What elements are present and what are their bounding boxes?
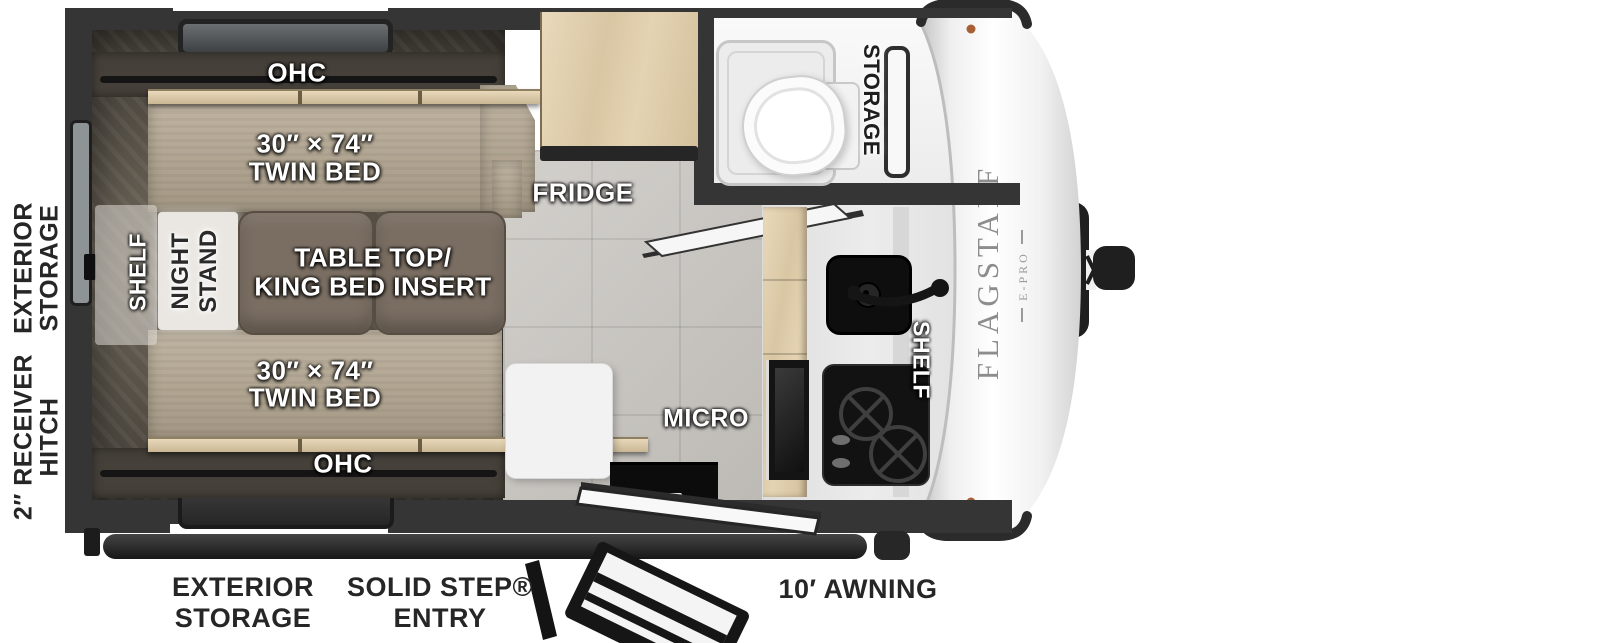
bathroom-door <box>638 196 873 258</box>
label-stand: STAND <box>195 229 223 312</box>
label-fridge: FRIDGE <box>532 178 633 209</box>
label-ohc-top: OHC <box>267 58 326 89</box>
marker-light-top <box>967 25 976 34</box>
label-exterior-storage-bottom: EXTERIOR STORAGE <box>143 572 343 634</box>
label-shelf-kitchen: SHELF <box>908 321 935 399</box>
label-ohc-bottom: OHC <box>313 449 372 480</box>
label-solid-step-entry: SOLID STEP® ENTRY <box>340 572 540 634</box>
label-night: NIGHT <box>167 232 195 309</box>
label-side-exterior: EXTERIOR <box>10 202 39 334</box>
hitch-coupler <box>1093 246 1135 290</box>
bathroom-window <box>884 46 910 178</box>
floorplan-canvas: FLAGSTAFF E-PRO <box>0 0 1600 643</box>
entry-door <box>575 480 830 538</box>
label-receiver-hitch-line1: 2″ RECEIVER <box>10 354 39 520</box>
label-bed-bottom-type: TWIN BED <box>249 383 382 414</box>
svg-text:E-PRO: E-PRO <box>1016 251 1030 301</box>
awning-end-cap <box>874 531 910 560</box>
roof-trim-top <box>173 3 388 11</box>
sofa-back-bottom <box>92 448 505 498</box>
label-shelf-bed: SHELF <box>125 233 152 311</box>
fridge-cabinet-edge <box>540 146 698 161</box>
fridge-cabinet <box>540 12 698 148</box>
label-table-line2: KING BED INSERT <box>254 272 491 303</box>
label-awning: 10′ AWNING <box>758 574 958 605</box>
microwave <box>766 360 809 480</box>
ohc-shelf-top <box>148 89 540 104</box>
label-receiver-hitch-line2: HITCH <box>36 398 65 477</box>
faucet <box>848 268 958 308</box>
label-bed-top-type: TWIN BED <box>249 157 382 188</box>
label-table-line1: TABLE TOP/ <box>294 243 451 274</box>
label-storage-bath: STORAGE <box>858 44 884 156</box>
label-bed-top-size: 30″ × 74″ <box>257 129 374 160</box>
label-side-storage: STORAGE <box>36 205 65 332</box>
wall-top-front <box>700 8 1012 18</box>
label-micro: MICRO <box>663 405 749 434</box>
awning-bracket <box>84 528 100 556</box>
seat-cushion-small <box>492 160 522 218</box>
dinette-table <box>506 364 612 478</box>
